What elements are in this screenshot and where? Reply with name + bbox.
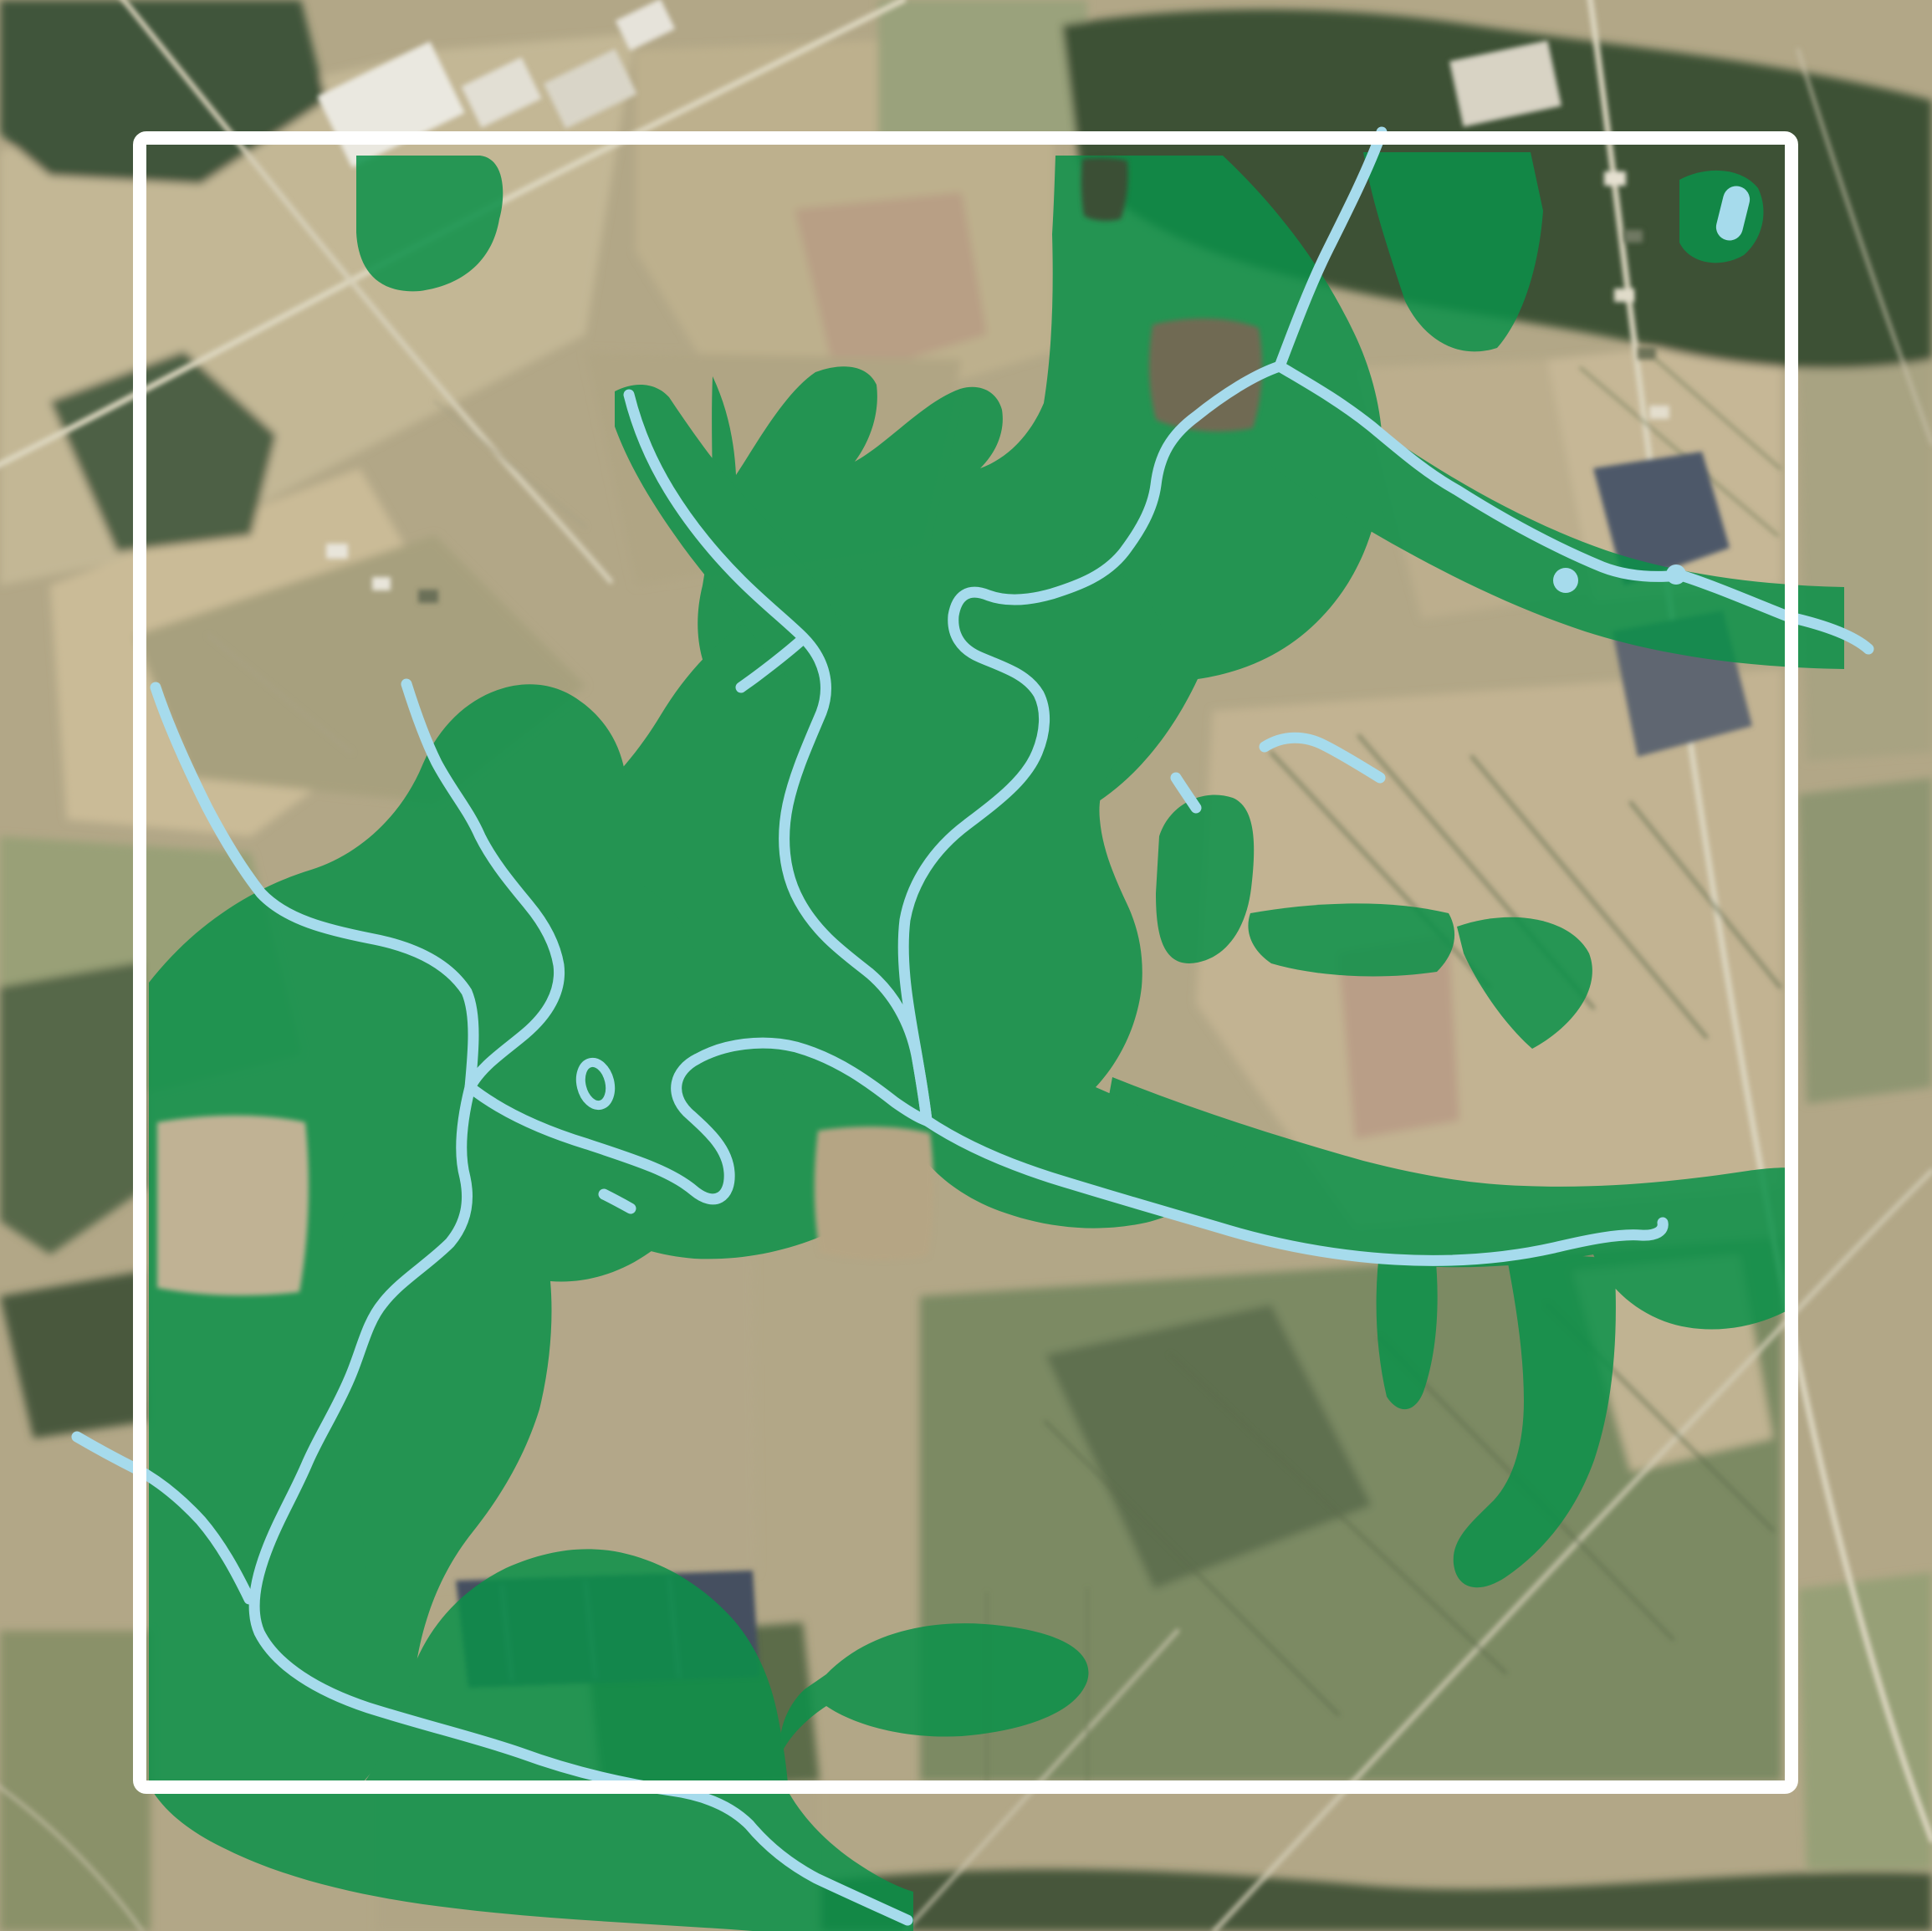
field-hole [157,1116,309,1295]
pond [1666,564,1686,585]
house [1604,171,1626,186]
forest-patch [1798,778,1932,1104]
house [1649,406,1669,419]
map-screenshot [0,0,1932,1931]
house [1638,347,1656,360]
field-hole [815,1126,934,1260]
field-patch [1798,1572,1932,1869]
forest-hole [1081,158,1128,221]
house [1614,289,1634,302]
house [372,577,391,590]
field-patch [0,1631,151,1931]
overlay-polygon [1248,903,1454,976]
field-patch [1798,351,1932,761]
field-patch [878,0,1087,138]
pond [1553,568,1578,593]
house [1624,230,1643,243]
house [326,544,348,559]
house [418,590,438,603]
map-canvas[interactable] [0,0,1932,1931]
